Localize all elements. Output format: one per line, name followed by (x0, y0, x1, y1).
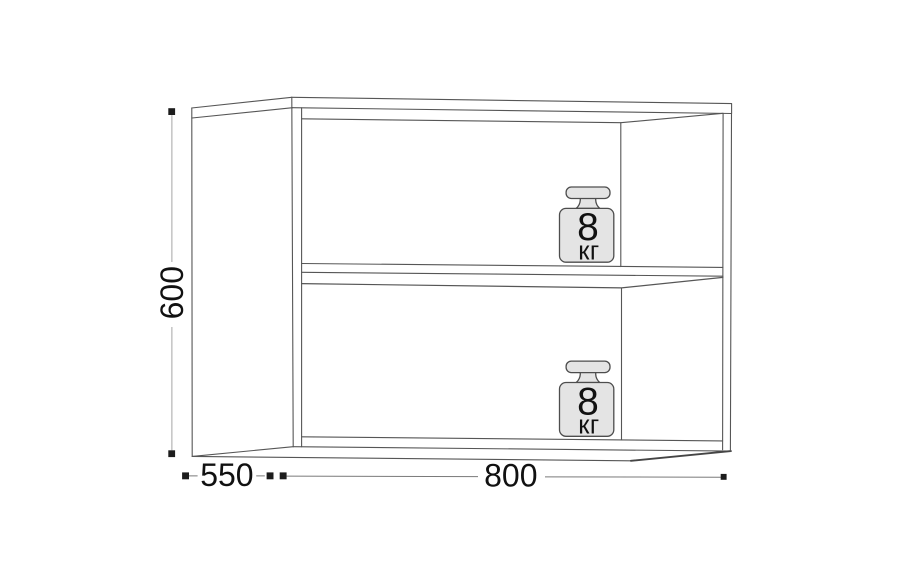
svg-text:550: 550 (200, 457, 253, 493)
svg-text:600: 600 (154, 266, 190, 319)
svg-text:800: 800 (484, 457, 537, 493)
svg-text:кг: кг (578, 238, 599, 266)
svg-text:кг: кг (578, 412, 599, 440)
